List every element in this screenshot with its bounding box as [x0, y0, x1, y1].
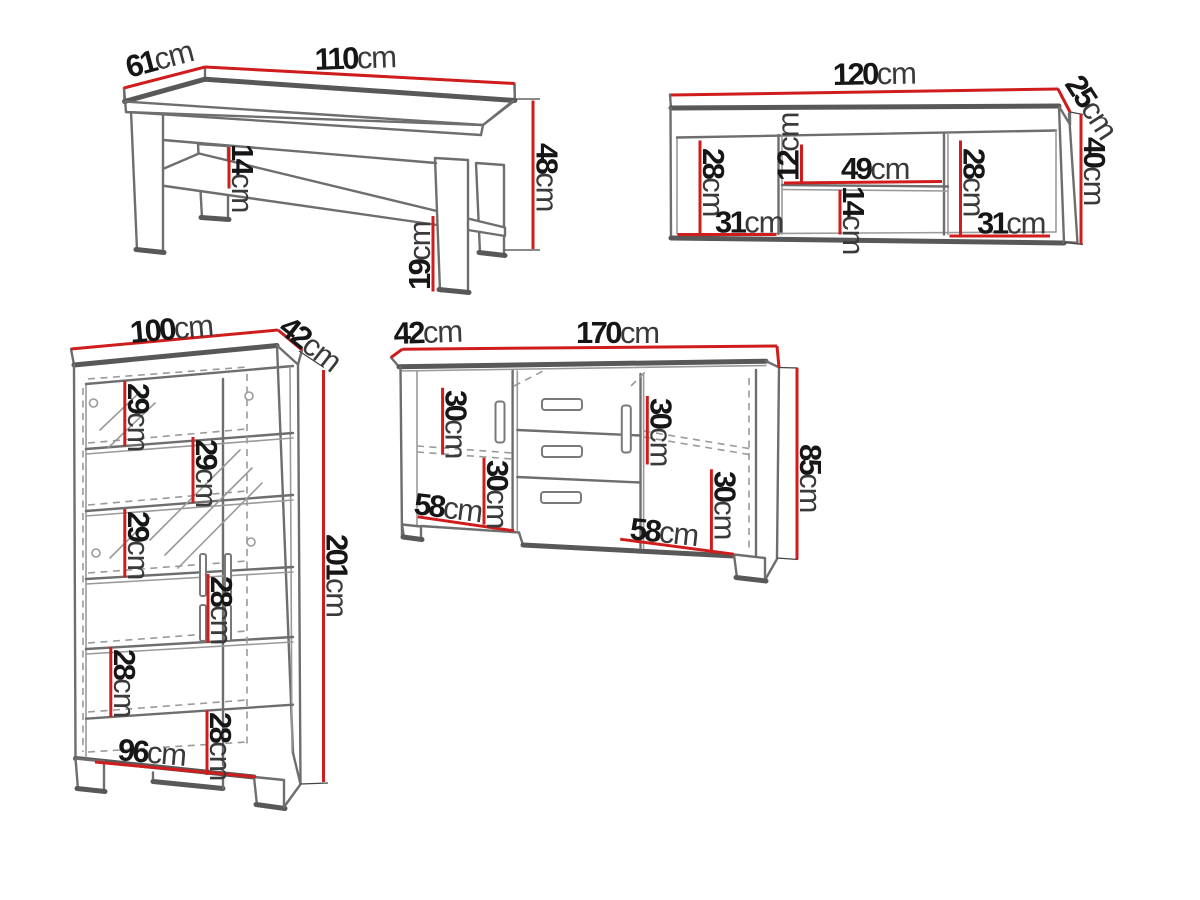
svg-text:28cm: 28cm [204, 576, 239, 644]
svg-text:96cm: 96cm [116, 732, 187, 773]
svg-text:110cm: 110cm [314, 39, 396, 77]
svg-text:12cm: 12cm [771, 113, 806, 181]
svg-text:28cm: 28cm [203, 712, 238, 780]
svg-text:30cm: 30cm [643, 398, 678, 466]
svg-text:85cm: 85cm [793, 444, 828, 512]
svg-text:30cm: 30cm [480, 460, 515, 528]
svg-text:30cm: 30cm [439, 390, 474, 458]
svg-text:58cm: 58cm [628, 511, 700, 553]
svg-text:29cm: 29cm [121, 511, 156, 579]
svg-text:28cm: 28cm [107, 649, 142, 717]
svg-text:58cm: 58cm [412, 486, 484, 529]
svg-text:100cm: 100cm [129, 308, 215, 350]
svg-text:48cm: 48cm [530, 143, 565, 211]
svg-text:42cm: 42cm [393, 314, 462, 351]
svg-text:30cm: 30cm [707, 471, 742, 539]
svg-text:40cm: 40cm [1077, 137, 1112, 205]
svg-text:42cm: 42cm [273, 309, 348, 379]
svg-text:31cm: 31cm [977, 206, 1045, 241]
svg-text:201cm: 201cm [320, 534, 355, 617]
svg-text:29cm: 29cm [121, 383, 156, 451]
svg-text:29cm: 29cm [189, 439, 224, 507]
svg-text:31cm: 31cm [715, 205, 783, 240]
svg-text:14cm: 14cm [225, 144, 260, 212]
svg-text:14cm: 14cm [836, 186, 871, 254]
svg-text:19cm: 19cm [402, 222, 437, 290]
svg-text:120cm: 120cm [833, 56, 916, 92]
svg-text:170cm: 170cm [576, 315, 659, 350]
svg-text:49cm: 49cm [841, 151, 909, 186]
